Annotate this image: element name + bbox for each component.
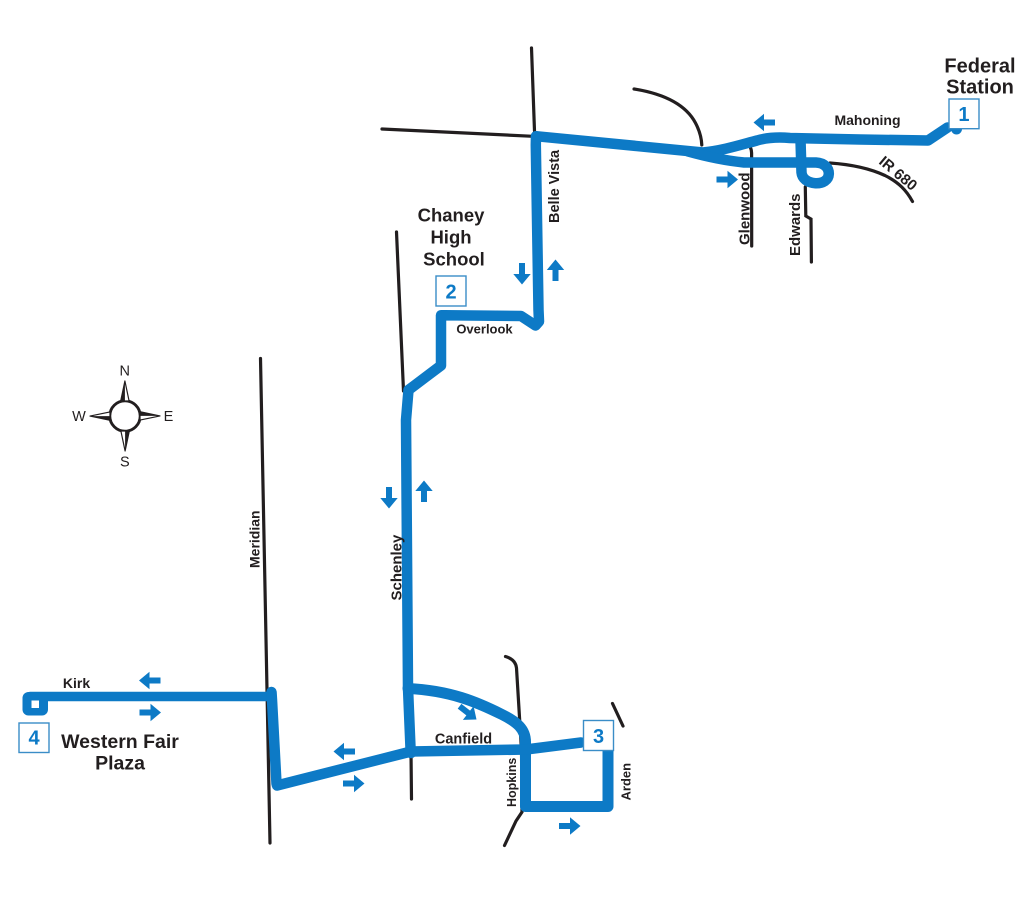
svg-text:Belle Vista: Belle Vista [547,149,563,223]
svg-text:Plaza: Plaza [95,753,145,775]
svg-text:Mahoning: Mahoning [834,112,900,128]
svg-text:Edwards: Edwards [787,193,804,256]
svg-text:Meridian: Meridian [247,510,263,568]
svg-text:Schenley: Schenley [389,534,406,601]
svg-text:Glenwood: Glenwood [737,173,754,246]
svg-text:3: 3 [593,726,604,748]
svg-text:Station: Station [946,76,1014,98]
svg-text:N: N [120,364,130,380]
svg-text:Canfield: Canfield [435,732,492,748]
svg-text:W: W [72,409,86,425]
svg-text:School: School [423,249,485,270]
svg-text:Overlook: Overlook [456,322,513,337]
svg-text:S: S [120,455,130,471]
svg-text:Federal: Federal [944,56,1015,78]
svg-text:Hopkins: Hopkins [505,758,519,807]
svg-text:1: 1 [958,104,969,126]
svg-text:Arden: Arden [619,763,634,801]
svg-text:High: High [430,227,471,248]
svg-text:4: 4 [28,728,40,750]
svg-text:Western Fair: Western Fair [61,731,179,753]
svg-text:E: E [164,409,174,425]
svg-text:Chaney: Chaney [418,205,486,226]
svg-text:Kirk: Kirk [63,675,90,691]
svg-text:2: 2 [445,282,456,304]
